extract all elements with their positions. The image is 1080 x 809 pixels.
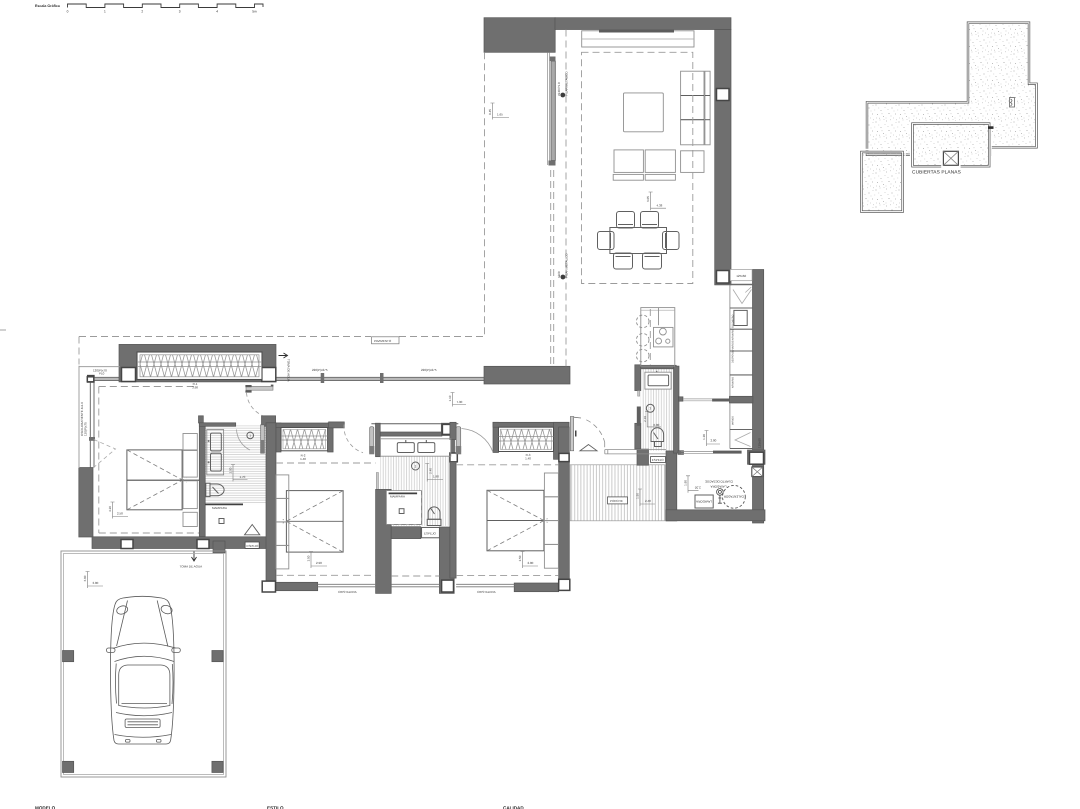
svg-text:CUARTO DESAGÜE: CUARTO DESAGÜE	[705, 480, 733, 484]
svg-text:ESPEJO: ESPEJO	[247, 544, 260, 548]
svg-text:LAVADORA: LAVADORA	[711, 485, 727, 489]
svg-text:LAVADORA: LAVADORA	[696, 500, 712, 504]
svg-text:PILAR METALICO: PILAR METALICO	[565, 253, 569, 278]
svg-text:0.45: 0.45	[488, 109, 492, 115]
svg-text:tabl0: tabl0	[557, 271, 561, 278]
svg-text:CRISTALERA: CRISTALERA	[338, 590, 357, 594]
svg-text:MAMPARA: MAMPARA	[212, 506, 227, 510]
svg-text:PL0: PL0	[99, 372, 105, 376]
svg-text:PAVIMENTO: PAVIMENTO	[374, 339, 392, 343]
svg-text:MODELO: MODELO	[35, 806, 56, 809]
svg-text:ESTILO: ESTILO	[267, 806, 284, 809]
svg-text:ESPEJO: ESPEJO	[652, 458, 665, 462]
svg-text:CRISTALERA: CRISTALERA	[477, 590, 496, 594]
svg-text:PORCHE: PORCHE	[610, 499, 623, 503]
svg-text:1.40: 1.40	[300, 457, 306, 461]
svg-text:ARMARIO ESCOBERO: ARMARIO ESCOBERO	[732, 314, 735, 340]
svg-text:VARIOS: VARIOS	[732, 416, 735, 425]
svg-text:Escala Gráfica: Escala Gráfica	[35, 4, 61, 8]
svg-text:TOMA DE AGUA: TOMA DE AGUA	[180, 565, 203, 569]
svg-text:2.58: 2.58	[117, 512, 123, 516]
svg-text:CALENTADOR: CALENTADOR	[723, 495, 744, 499]
svg-text:PILAR METALICO: PILAR METALICO	[565, 71, 569, 96]
svg-text:4: 4	[216, 10, 218, 14]
svg-text:2.00: 2.00	[229, 467, 233, 473]
svg-text:TOMA DE AGUA: TOMA DE AGUA	[287, 359, 291, 382]
svg-text:1.90: 1.90	[683, 480, 687, 486]
svg-text:ARMARIO: ARMARIO	[732, 377, 735, 388]
svg-text:2.80: 2.80	[528, 561, 534, 565]
svg-text:1: 1	[104, 10, 106, 14]
svg-text:5m: 5m	[252, 10, 257, 14]
svg-text:3.80: 3.80	[93, 581, 99, 585]
svg-text:7.90: 7.90	[457, 400, 463, 404]
svg-text:220(P)x275: 220(P)x275	[312, 368, 328, 372]
svg-text:#240 P1.0: #240 P1.0	[557, 82, 561, 96]
svg-text:1.70: 1.70	[240, 475, 246, 479]
svg-text:1.50: 1.50	[636, 493, 640, 499]
svg-text:1.65: 1.65	[497, 113, 503, 117]
svg-text:2: 2	[141, 10, 143, 14]
svg-text:1.10: 1.10	[448, 395, 452, 401]
svg-text:0.80: 0.80	[654, 423, 660, 427]
svg-text:ESPEJO: ESPEJO	[424, 532, 437, 536]
svg-text:4.38: 4.38	[657, 204, 663, 208]
svg-text:2.80: 2.80	[711, 439, 717, 443]
svg-text:0: 0	[67, 10, 69, 14]
svg-text:CALIDAD: CALIDAD	[503, 806, 524, 809]
svg-text:1.38: 1.38	[702, 434, 706, 440]
svg-text:MAMPARA: MAMPARA	[390, 495, 405, 499]
svg-text:CUBIERTAS PLANAS: CUBIERTAS PLANAS	[912, 169, 961, 175]
svg-text:2.48: 2.48	[645, 499, 651, 503]
svg-text:2.30: 2.30	[695, 485, 701, 489]
svg-text:4.20: 4.20	[108, 506, 112, 512]
svg-text:6.80: 6.80	[83, 575, 87, 581]
svg-text:6.05: 6.05	[646, 196, 650, 202]
svg-text:3: 3	[179, 10, 181, 14]
svg-text:2.19: 2.19	[643, 416, 647, 422]
svg-text:2.98: 2.98	[316, 561, 322, 565]
svg-text:3.50: 3.50	[518, 555, 522, 561]
svg-text:220(P)x275: 220(P)x275	[421, 368, 437, 372]
svg-text:DESPENSA VARIOS: DESPENSA VARIOS	[732, 340, 735, 363]
svg-text:125x60: 125x60	[736, 274, 746, 278]
svg-text:120(P)x75: 120(P)x75	[84, 422, 88, 436]
svg-text:3.98: 3.98	[192, 386, 198, 390]
svg-text:125x60: 125x60	[758, 438, 762, 448]
svg-text:1.90: 1.90	[433, 475, 439, 479]
svg-text:3.50: 3.50	[307, 555, 311, 561]
svg-text:1.40: 1.40	[525, 457, 531, 461]
svg-text:2.40: 2.40	[429, 468, 433, 474]
